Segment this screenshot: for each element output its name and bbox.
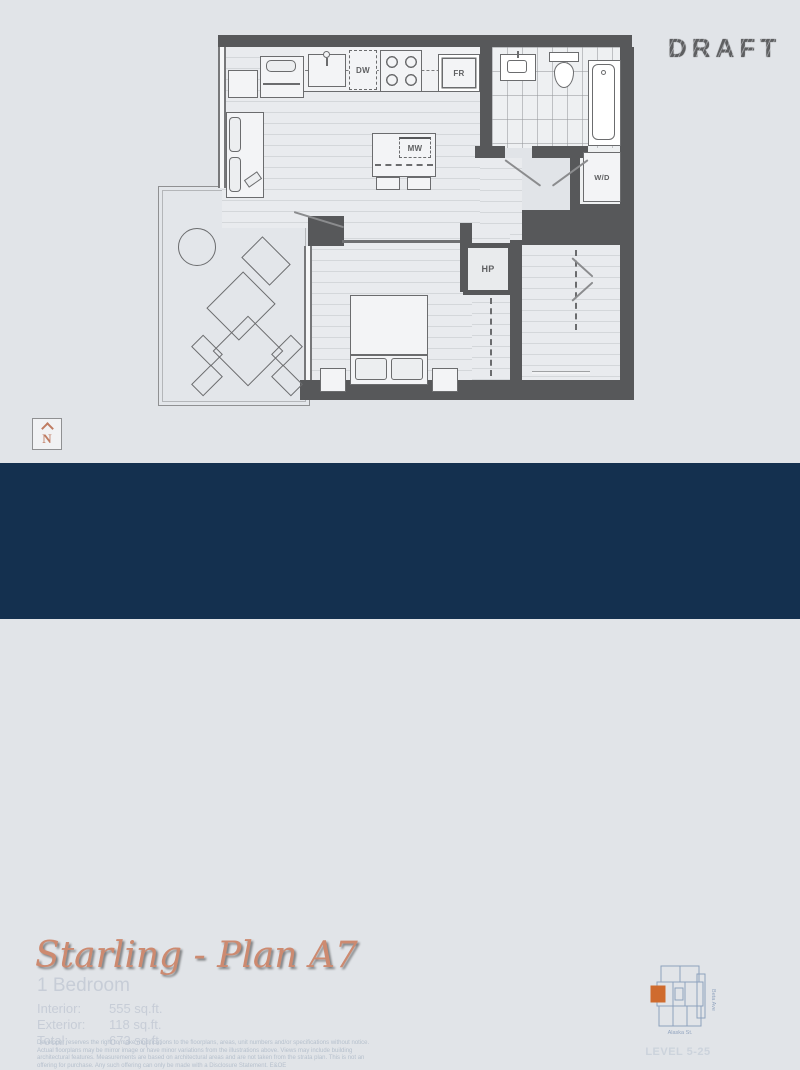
fridge-label: FR <box>453 69 464 78</box>
area-value: 555 sq.ft. <box>109 1001 162 1017</box>
microwave: MW <box>399 137 431 158</box>
sofa <box>226 112 264 198</box>
keyplan-unit-highlight <box>651 986 665 1002</box>
draft-watermark: DRAFT <box>668 33 788 63</box>
dishwasher: DW <box>349 50 377 90</box>
wall-right <box>620 47 634 400</box>
nightstand <box>432 368 458 392</box>
washer-dryer-label: W/D <box>594 173 609 182</box>
keyplan: Alaska St. Beta Ave <box>645 960 717 1042</box>
kitchen-sink <box>308 54 346 87</box>
dining-chair <box>191 335 223 367</box>
keyplan-street-right: Beta Ave <box>710 989 716 1011</box>
island-table: MW <box>372 133 436 177</box>
bathtub <box>588 60 621 146</box>
dining-set <box>185 300 315 410</box>
nightstand <box>320 368 346 392</box>
window-living <box>218 47 226 188</box>
bath-sink <box>500 54 536 81</box>
microwave-label: MW <box>408 144 423 153</box>
coat-closet-rod <box>490 298 492 376</box>
info-band: Starling - Plan A7 1 Bedroom Interior: 5… <box>0 463 800 619</box>
side-table <box>228 70 258 98</box>
armchair <box>260 56 304 98</box>
area-value: 118 sq.ft. <box>109 1017 162 1033</box>
dining-chair <box>191 365 223 397</box>
wall-bedroom-top <box>342 240 464 243</box>
disclaimer-text: Developer reserves the right to make mod… <box>37 1040 382 1070</box>
area-row-exterior: Exterior: 118 sq.ft. <box>37 1017 162 1033</box>
area-label: Interior: <box>37 1001 109 1017</box>
fridge: FR <box>438 54 480 92</box>
area-row-interior: Interior: 555 sq.ft. <box>37 1001 162 1017</box>
entry-closet-floor <box>522 245 620 380</box>
toilet-tank <box>549 52 579 62</box>
stool <box>376 177 400 190</box>
wall-kitchen-bath <box>480 47 492 146</box>
range-cooktop <box>380 50 422 92</box>
keyplan-drawing: Alaska St. Beta Ave <box>645 960 717 1042</box>
bed <box>350 295 428 385</box>
north-arrow: N <box>32 418 62 450</box>
area-label: Exterior: <box>37 1017 109 1033</box>
dining-chair <box>271 365 303 397</box>
dishwasher-label: DW <box>356 66 370 75</box>
heat-pump-label: HP <box>481 264 494 274</box>
washer-dryer: W/D <box>583 152 621 202</box>
dining-chair <box>271 335 303 367</box>
plan-subtitle: 1 Bedroom <box>37 975 130 997</box>
wall-laundry-left <box>570 148 580 212</box>
wall-closet-bulkhead <box>522 210 620 245</box>
keyplan-street-bottom: Alaska St. <box>668 1030 693 1036</box>
level-label: LEVEL 5-25 <box>637 1046 719 1058</box>
entry-door <box>532 371 590 374</box>
wall-bath-door-left <box>475 146 505 158</box>
plan-title: Starling - Plan A7 <box>35 935 555 976</box>
heat-pump-closet: HP <box>463 243 513 295</box>
floorplan-sheet: DRAFT DW FR MW <box>0 0 800 463</box>
stool <box>407 177 431 190</box>
wall-top <box>218 35 632 47</box>
